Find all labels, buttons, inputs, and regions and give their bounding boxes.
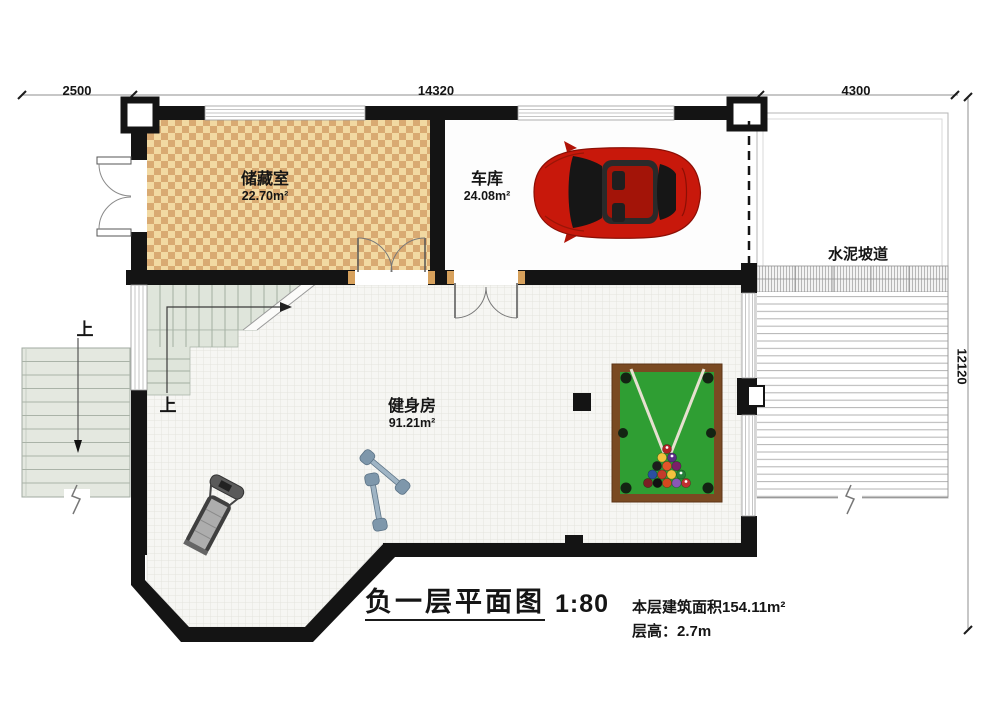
ramp-label: 水泥坡道 xyxy=(828,247,888,262)
ramp-slope-lines xyxy=(757,292,948,497)
corner-pier-topleft xyxy=(124,100,156,130)
dim-top-left: 2500 xyxy=(63,84,92,97)
storage-room-area: 22.70m² xyxy=(242,190,289,203)
wall-storage-garage xyxy=(430,118,445,270)
car-windshield xyxy=(569,156,603,228)
window-gym-right-upper xyxy=(742,293,755,378)
wall-garage-gym xyxy=(518,270,742,285)
garage-label: 车库 xyxy=(471,172,503,188)
corner-pier-topright xyxy=(730,100,764,128)
gym-label: 健身房 xyxy=(388,399,436,415)
dim-top-right: 4300 xyxy=(842,84,871,97)
entry-door-leaf xyxy=(97,229,131,236)
floor-height-note: 层高：2.7m xyxy=(632,620,711,641)
dim-top-middle: 14320 xyxy=(418,84,454,97)
storage-room-label: 储藏室 xyxy=(241,172,289,188)
window-storage-top xyxy=(205,106,365,120)
storage-floor xyxy=(147,120,430,270)
structural-column xyxy=(573,393,591,411)
dim-right: 12120 xyxy=(956,348,969,384)
window-garage-top xyxy=(518,106,674,120)
car xyxy=(534,141,701,243)
interior-stairs-up-label: 上 xyxy=(160,397,177,414)
car-rear-window xyxy=(657,164,676,220)
exterior-stairs-up-label: 上 xyxy=(77,321,94,338)
plan-scale: 1:80 xyxy=(555,592,609,617)
floorplan-page: { "title_block": { "title": "负一层平面图", "s… xyxy=(0,0,1000,706)
wall-niche xyxy=(748,386,764,406)
garage-area: 24.08m² xyxy=(464,190,511,203)
wall-bottom xyxy=(383,543,757,557)
gym-area: 91.21m² xyxy=(389,417,436,430)
exterior-stairs xyxy=(22,338,130,514)
window-gym-right-lower xyxy=(742,415,755,516)
window-gym-left xyxy=(131,285,147,390)
ramp-area xyxy=(757,113,948,514)
plan-title: 负一层平面图 xyxy=(365,589,545,621)
billiard-table xyxy=(612,364,722,502)
floor-area-note: 本层建筑面积154.11m² xyxy=(632,596,785,617)
entry-door-leaf xyxy=(97,157,131,164)
